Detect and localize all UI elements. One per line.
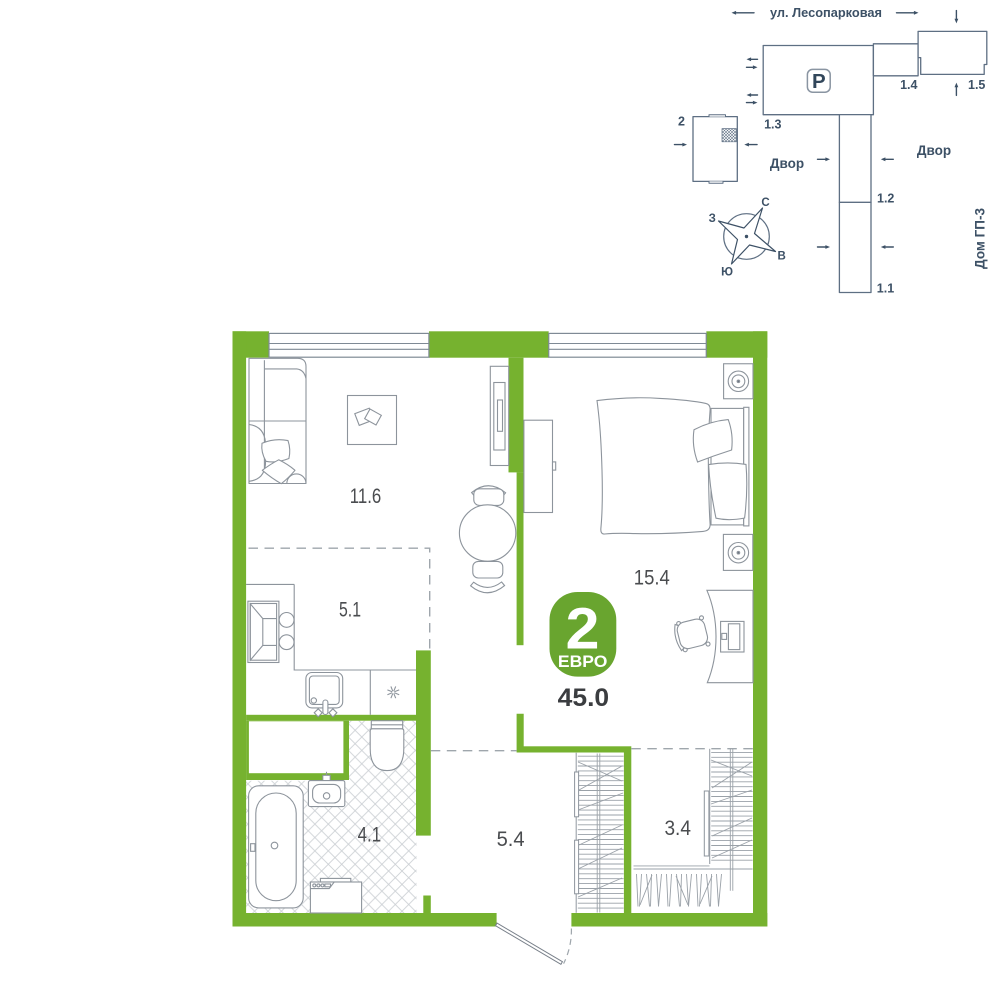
svg-text:5.4: 5.4 — [497, 828, 525, 851]
svg-text:45.0: 45.0 — [558, 684, 610, 712]
svg-text:1.5: 1.5 — [968, 78, 985, 92]
svg-text:С: С — [761, 197, 769, 209]
svg-text:ЕВРО: ЕВРО — [558, 652, 608, 671]
svg-text:4.1: 4.1 — [358, 824, 382, 847]
svg-text:3.4: 3.4 — [664, 817, 691, 840]
svg-text:Дом ГП-3: Дом ГП-3 — [973, 208, 988, 269]
svg-text:ул. Лесопарковая: ул. Лесопарковая — [770, 5, 882, 20]
svg-text:1.1: 1.1 — [877, 281, 894, 295]
svg-text:2: 2 — [678, 114, 685, 128]
svg-text:З: З — [709, 213, 716, 225]
svg-text:1.4: 1.4 — [900, 78, 917, 92]
svg-text:В: В — [778, 251, 786, 263]
svg-text:Ю: Ю — [721, 267, 733, 279]
svg-text:Двор: Двор — [770, 156, 804, 171]
svg-text:Двор: Двор — [917, 143, 951, 158]
svg-text:1.2: 1.2 — [877, 191, 894, 205]
svg-text:1.3: 1.3 — [764, 118, 781, 132]
svg-text:5.1: 5.1 — [339, 599, 361, 622]
svg-text:P: P — [812, 70, 826, 93]
svg-text:15.4: 15.4 — [634, 567, 670, 590]
svg-text:11.6: 11.6 — [350, 485, 382, 508]
